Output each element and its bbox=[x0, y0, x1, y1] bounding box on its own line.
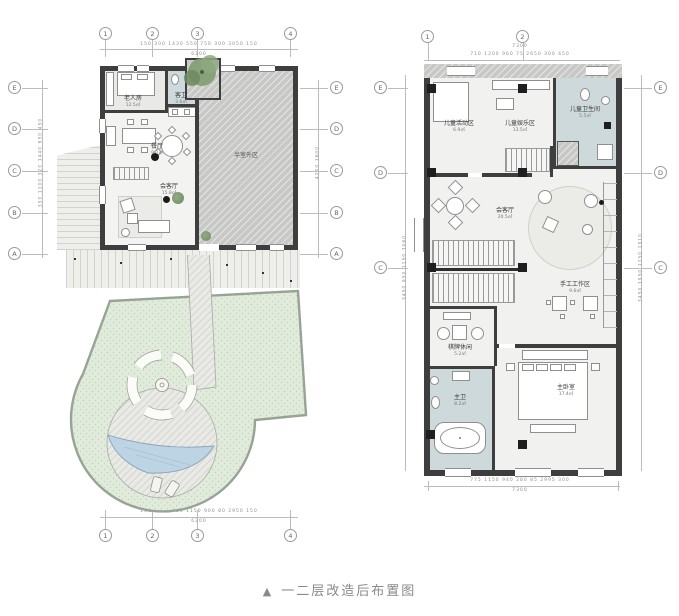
room-area: 20.5㎡ bbox=[486, 215, 524, 221]
dim-values-bottom: 775 1150 940 280 85 2995 300 bbox=[420, 478, 620, 483]
toilet bbox=[580, 88, 590, 101]
door-opening bbox=[468, 173, 482, 177]
stool bbox=[546, 300, 551, 305]
side-table bbox=[121, 228, 130, 237]
grid-bubble: E bbox=[8, 81, 21, 94]
stair-1f bbox=[113, 167, 149, 180]
partition-wall bbox=[497, 344, 622, 348]
room-name: 手工工作区 bbox=[551, 281, 599, 289]
room-label-living: 会客厅 15.8㎡ bbox=[152, 183, 186, 196]
grid-bubble: E bbox=[330, 81, 343, 94]
window bbox=[236, 244, 256, 251]
room-area: 6.9㎡ bbox=[437, 128, 481, 134]
dim-values-top: 150 300 1430 550 750 300 3050 150 bbox=[100, 42, 298, 47]
window bbox=[128, 244, 146, 251]
room-label-family-room: 会客厅 20.5㎡ bbox=[486, 207, 524, 220]
room-area: 5.2㎡ bbox=[442, 352, 478, 358]
round-chair bbox=[437, 327, 450, 340]
window bbox=[445, 468, 471, 477]
work-table bbox=[583, 296, 598, 311]
cooktop bbox=[184, 109, 190, 115]
low-cabinet bbox=[522, 350, 588, 360]
column bbox=[518, 168, 527, 177]
grid-bubble: 2 bbox=[516, 30, 529, 43]
stair-wall bbox=[550, 146, 553, 177]
grid-bubble: 4 bbox=[284, 529, 297, 542]
lounge-chair bbox=[538, 190, 552, 204]
entrance-door bbox=[199, 244, 219, 251]
room-label-kids-bath: 儿童卫生间 5.5㎡ bbox=[558, 106, 612, 119]
grid-bubble: 4 bbox=[284, 27, 297, 40]
round-chair bbox=[471, 327, 484, 340]
grid-bubble: C bbox=[654, 261, 667, 274]
column bbox=[518, 84, 527, 93]
lounge-chair bbox=[584, 194, 598, 208]
door-opening bbox=[499, 344, 515, 348]
dim-values-left: 3450 950 1150 3060 bbox=[403, 118, 408, 418]
room-area: 15.8㎡ bbox=[152, 191, 186, 197]
partition-wall bbox=[553, 64, 556, 168]
kitchen-sink bbox=[172, 109, 178, 115]
dim-total-top: 7300 bbox=[420, 44, 620, 49]
room-label-elder-bedroom: 老人房 12.5㎡ bbox=[112, 95, 154, 108]
shower bbox=[597, 144, 613, 160]
room-label-kids-play: 儿童娱乐区 13.5㎡ bbox=[496, 120, 544, 133]
grid-leader bbox=[22, 129, 48, 130]
room-label-craft-area: 手工工作区 9.6㎡ bbox=[551, 281, 599, 294]
grid-bubble: D bbox=[374, 166, 387, 179]
room-name: 客卫 bbox=[167, 92, 195, 100]
deck-post bbox=[74, 258, 76, 260]
wall-closet bbox=[603, 182, 617, 328]
column-dot bbox=[163, 196, 170, 203]
sofa bbox=[138, 220, 170, 233]
grid-bubble: C bbox=[330, 164, 343, 177]
grid-bubble: 3 bbox=[191, 27, 204, 40]
pillow bbox=[550, 364, 562, 371]
dim-line bbox=[424, 60, 620, 61]
room-name: 棋牌休闲 bbox=[442, 344, 478, 352]
window bbox=[515, 468, 551, 477]
dim-values-right: 4200 1600 bbox=[316, 78, 321, 248]
room-name: 儿童娱乐区 bbox=[496, 120, 544, 128]
stair-upper bbox=[505, 148, 550, 172]
column bbox=[427, 168, 436, 177]
room-name: 老人房 bbox=[112, 95, 154, 103]
partition-wall bbox=[100, 110, 168, 113]
room-label-master-bath: 主卫 8.2㎡ bbox=[445, 394, 475, 407]
partition-wall bbox=[426, 306, 497, 309]
chair bbox=[127, 119, 134, 125]
grid-bubble: E bbox=[374, 81, 387, 94]
deck-post bbox=[120, 262, 122, 264]
master-bath-floor bbox=[430, 368, 492, 470]
window bbox=[259, 65, 275, 72]
sink bbox=[601, 96, 610, 105]
pillow bbox=[536, 364, 548, 371]
column bbox=[518, 263, 527, 272]
dim-total-bottom: 7300 bbox=[420, 488, 620, 493]
stair-flight-down bbox=[432, 273, 515, 303]
partition-wall bbox=[494, 306, 497, 366]
column bbox=[518, 440, 527, 449]
grid-leader bbox=[624, 88, 652, 89]
column bbox=[426, 430, 435, 439]
room-area: 5.5㎡ bbox=[558, 114, 612, 120]
window bbox=[137, 65, 149, 72]
room-label-semi-outdoor: 半室外区 bbox=[199, 152, 293, 160]
side-table bbox=[582, 224, 593, 235]
stool bbox=[560, 314, 565, 319]
room-label-kids-activity: 儿童活动区 6.9㎡ bbox=[437, 120, 481, 133]
room-name: 儿童卫生间 bbox=[558, 106, 612, 114]
duct-closet bbox=[557, 141, 579, 166]
deck-post bbox=[170, 258, 172, 260]
room-name: 餐厅 bbox=[144, 143, 170, 151]
room-name: 儿童活动区 bbox=[437, 120, 481, 128]
toilet bbox=[171, 74, 179, 85]
stair-handrail bbox=[428, 268, 520, 271]
grid-leader bbox=[22, 213, 48, 214]
game-table bbox=[452, 325, 467, 340]
floor-plan-sheet: 1 2 3 4 150 300 1430 550 750 300 3050 15… bbox=[0, 0, 679, 616]
washer bbox=[430, 376, 439, 385]
caption-triangle-icon: ▲ bbox=[263, 585, 273, 598]
grid-bubble: A bbox=[330, 247, 343, 260]
grid-bubble: 1 bbox=[421, 30, 434, 43]
column bbox=[427, 263, 436, 272]
grid-leader bbox=[22, 171, 48, 172]
room-name: 主卧室 bbox=[546, 384, 586, 392]
room-area: 17.4㎡ bbox=[546, 392, 586, 398]
room-label-master-bedroom: 主卧室 17.4㎡ bbox=[546, 384, 586, 397]
room-area: 9.2㎡ bbox=[144, 151, 170, 157]
nightstand bbox=[591, 363, 600, 371]
deck-post bbox=[262, 272, 264, 274]
fire-pit bbox=[156, 379, 169, 392]
entry-steps bbox=[57, 145, 100, 250]
work-table bbox=[552, 296, 567, 311]
grid-leader bbox=[300, 171, 328, 172]
window bbox=[270, 244, 284, 251]
bed-bench bbox=[530, 424, 576, 433]
grid-leader bbox=[300, 129, 328, 130]
room-name: 主卫 bbox=[445, 394, 475, 402]
column bbox=[427, 84, 436, 93]
caption-title: 一二层改造后布置图 bbox=[281, 584, 416, 599]
pillow bbox=[121, 74, 132, 80]
chair bbox=[127, 147, 134, 153]
deck-post bbox=[226, 264, 228, 266]
stair-flight-up bbox=[432, 240, 515, 266]
grid-bubble: C bbox=[374, 261, 387, 274]
grid-bubble: 2 bbox=[146, 529, 159, 542]
grid-bubble: 2 bbox=[146, 27, 159, 40]
dim-values-right: 3450 1950 1150 1910 bbox=[639, 118, 644, 418]
grid-bubble: 1 bbox=[99, 529, 112, 542]
partition-wall bbox=[426, 366, 495, 369]
play-mat bbox=[433, 82, 469, 122]
garden bbox=[40, 255, 330, 525]
room-label-dining: 餐厅 9.2㎡ bbox=[144, 143, 170, 156]
partition-wall bbox=[553, 166, 616, 169]
pillow bbox=[522, 364, 534, 371]
stool bbox=[570, 300, 575, 305]
window bbox=[118, 65, 134, 72]
floor-lamp bbox=[599, 200, 604, 205]
grid-bubble: B bbox=[330, 206, 343, 219]
pillow bbox=[137, 74, 148, 80]
room-name: 会客厅 bbox=[486, 207, 524, 215]
window bbox=[99, 186, 106, 204]
grid-bubble: 3 bbox=[191, 529, 204, 542]
grid-bubble: E bbox=[654, 81, 667, 94]
bay-window bbox=[414, 218, 424, 252]
grid-bubble: B bbox=[8, 206, 21, 219]
grid-bubble: D bbox=[8, 122, 21, 135]
sheet-caption: ▲一二层改造后布置图 bbox=[0, 580, 679, 599]
room-area: 12.5㎡ bbox=[112, 103, 154, 109]
kids-table bbox=[496, 98, 514, 110]
room-name: 半室外区 bbox=[199, 152, 293, 160]
partition-wall bbox=[492, 366, 495, 470]
pillow bbox=[564, 364, 576, 371]
room-name: 会客厅 bbox=[152, 183, 186, 191]
room-area: 3.6㎡ bbox=[167, 100, 195, 106]
potted-plant bbox=[201, 231, 211, 241]
room-area: 13.5㎡ bbox=[496, 128, 544, 134]
toilet bbox=[431, 396, 440, 409]
room-label-guest-bath: 客卫 3.6㎡ bbox=[167, 92, 195, 105]
grid-bubble: D bbox=[654, 166, 667, 179]
grid-leader bbox=[300, 213, 328, 214]
dim-line bbox=[424, 486, 620, 487]
coffee-table bbox=[127, 213, 138, 224]
window bbox=[578, 468, 604, 477]
stool bbox=[590, 314, 595, 319]
side-desk bbox=[106, 126, 116, 146]
dim-values-left: 350 1100 320 1440 650 450 bbox=[39, 78, 44, 248]
dining-island bbox=[122, 128, 156, 144]
tea-table bbox=[446, 197, 464, 215]
window bbox=[99, 119, 106, 133]
bathtub-drain bbox=[459, 437, 461, 439]
grid-leader bbox=[300, 88, 328, 89]
dim-values-top: 710 1200 960 75 2650 300 450 bbox=[420, 52, 620, 57]
grid-leader bbox=[22, 88, 48, 89]
room-label-leisure: 棋牌休闲 5.2㎡ bbox=[442, 344, 478, 357]
vanity-sink bbox=[452, 371, 470, 381]
deck-post bbox=[290, 280, 292, 282]
grid-bubble: D bbox=[330, 122, 343, 135]
window bbox=[447, 66, 475, 76]
grid-bubble: 1 bbox=[99, 27, 112, 40]
grid-bubble: A bbox=[8, 247, 21, 260]
window bbox=[586, 66, 608, 76]
washer bbox=[604, 122, 611, 129]
tree bbox=[180, 50, 224, 98]
room-area: 8.2㎡ bbox=[445, 402, 475, 408]
room-area: 9.6㎡ bbox=[551, 289, 599, 295]
nightstand bbox=[506, 363, 515, 371]
grid-bubble: C bbox=[8, 164, 21, 177]
cabinet bbox=[443, 312, 471, 320]
chair bbox=[141, 119, 148, 125]
